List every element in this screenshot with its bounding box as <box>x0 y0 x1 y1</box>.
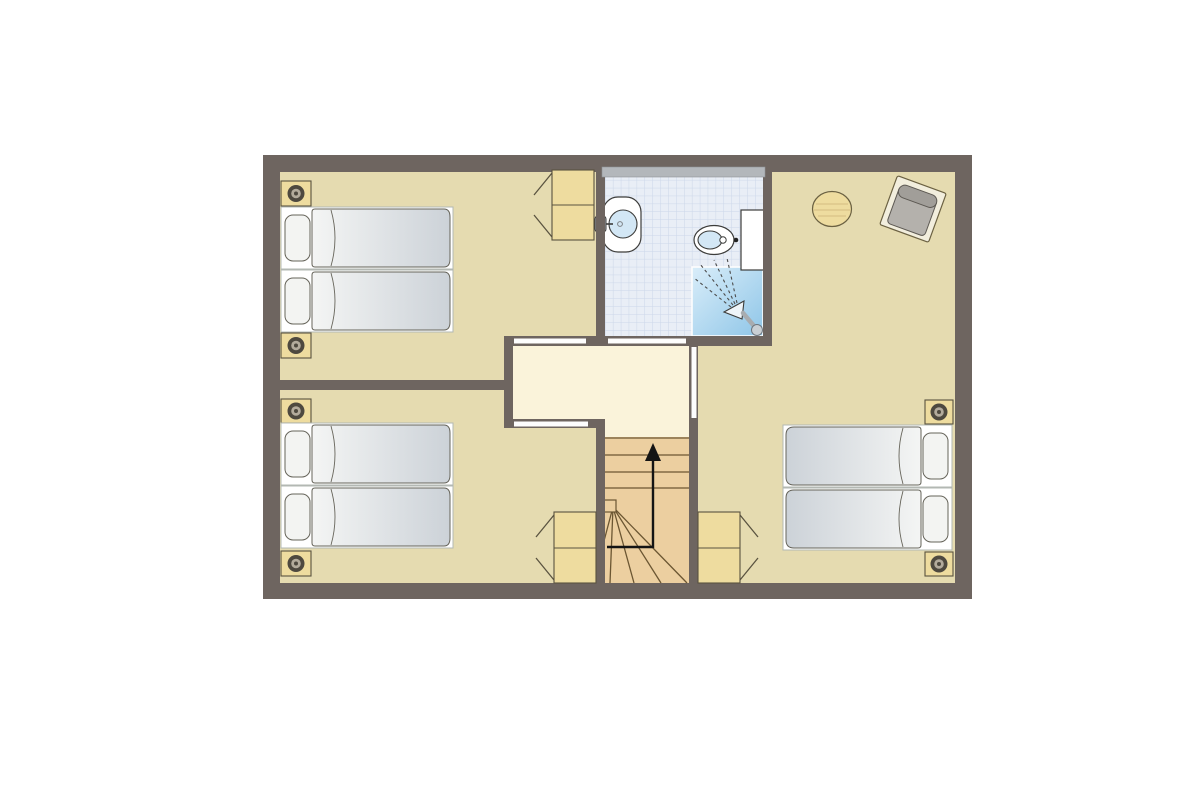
lamp-center <box>294 409 298 413</box>
shower-head-icon <box>752 325 763 336</box>
door-bathroom <box>608 339 686 344</box>
toilet-valve-dot <box>734 238 739 243</box>
lamp-center <box>937 562 941 566</box>
flush-icon <box>720 237 726 243</box>
nightstand-with-lamp <box>281 399 311 423</box>
single-bed <box>281 270 453 332</box>
bathroom-window <box>602 167 765 177</box>
lamp-center <box>937 410 941 414</box>
toilet-bowl-inner <box>698 231 722 249</box>
nightstand-with-lamp <box>281 333 311 358</box>
newel-post <box>604 500 616 512</box>
single-bed <box>281 486 453 548</box>
floor-plan <box>0 0 1200 800</box>
lamp-center <box>294 192 298 196</box>
round-side-table <box>813 192 852 227</box>
single-bed <box>281 207 453 269</box>
pillow <box>923 433 948 479</box>
staircase <box>604 437 689 583</box>
washbasin-bowl <box>609 210 637 238</box>
landing-left-wall <box>504 336 513 428</box>
wall-between-left-bedrooms <box>280 380 513 390</box>
nightstand-with-lamp <box>925 400 953 424</box>
floor-plan-canvas <box>0 0 1200 800</box>
nightstand-with-lamp <box>925 552 953 576</box>
door-right-bedroom <box>692 347 697 418</box>
pillow <box>285 215 310 261</box>
pillow <box>285 278 310 324</box>
single-bed <box>783 488 952 550</box>
door-bottom-left-bedroom <box>514 422 588 427</box>
pillow <box>285 494 310 540</box>
pillow <box>285 431 310 477</box>
room-bathroom <box>595 172 764 336</box>
bathroom-right-wall <box>763 172 772 346</box>
pillow <box>923 496 948 542</box>
lamp-center <box>294 562 298 566</box>
nightstand-with-lamp <box>281 551 311 576</box>
single-bed <box>783 425 952 487</box>
toilet-cistern <box>741 210 764 270</box>
nightstand-with-lamp <box>281 181 311 206</box>
bathroom-left-wall <box>596 172 605 346</box>
table-top <box>813 192 852 227</box>
single-bed <box>281 423 453 485</box>
lamp-center <box>294 344 298 348</box>
stair-left-wall <box>596 419 605 583</box>
door-top-left-bedroom <box>514 339 586 344</box>
